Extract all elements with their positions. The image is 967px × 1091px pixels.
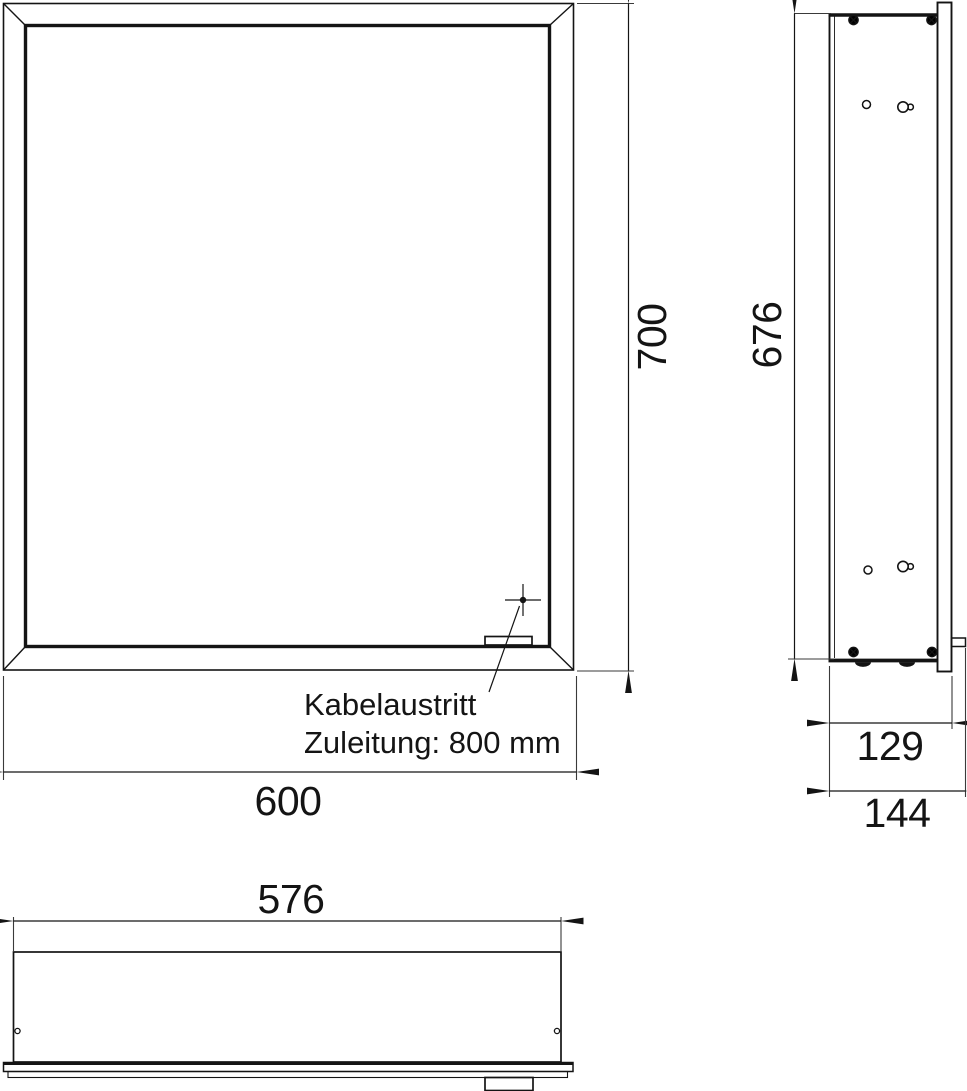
keyhole-slot	[898, 561, 914, 571]
front-inner-frame-mirror-edge	[26, 26, 550, 647]
bottom-screw-holes	[15, 1028, 560, 1033]
dimension-side-body-height: 676	[744, 14, 834, 660]
screw-icons	[849, 15, 937, 656]
dim-label-side-body-depth: 129	[857, 723, 924, 769]
dimension-front-height: 700	[577, 4, 675, 672]
dim-label-front-height: 700	[629, 304, 675, 371]
cable-annotation: Kabelaustritt Zuleitung: 800 mm	[304, 687, 561, 760]
bottom-view	[4, 952, 574, 1091]
dim-label-side-total-depth: 144	[864, 790, 931, 836]
mounting-holes	[863, 101, 914, 575]
dimension-side-body-depth: 129	[830, 666, 953, 797]
mounting-hole	[863, 101, 871, 109]
side-door-panel	[938, 3, 952, 672]
bottom-switch-tab	[485, 1078, 533, 1091]
screw-icon	[927, 15, 936, 24]
side-switch-tab	[952, 638, 966, 647]
dim-label-front-width: 600	[255, 778, 322, 824]
bottom-body-outline	[14, 952, 562, 1062]
front-bevel-corners	[4, 4, 574, 671]
keyhole-slot	[898, 102, 914, 112]
screw-icon	[849, 15, 858, 24]
dim-label-side-body-height: 676	[744, 302, 790, 369]
screw-icon	[849, 647, 858, 656]
screw-hole	[554, 1028, 559, 1033]
cable-exit-marker	[505, 584, 541, 616]
mounting-hole	[864, 566, 872, 574]
cable-exit-leader-line	[489, 606, 520, 692]
screw-icon	[927, 647, 936, 656]
front-view	[4, 4, 574, 693]
dim-label-bottom-body-width: 576	[258, 876, 325, 922]
technical-drawing-canvas: 700 600	[0, 0, 967, 1091]
technical-drawing: 700 600	[0, 0, 967, 1091]
screw-hole	[15, 1028, 20, 1033]
bottom-bumps	[855, 662, 915, 667]
front-outer-frame	[4, 4, 574, 671]
dimension-bottom-body-width: 576	[14, 876, 562, 951]
cable-supply-label: Zuleitung: 800 mm	[304, 725, 561, 760]
side-view	[829, 3, 966, 672]
cable-exit-label: Kabelaustritt	[304, 687, 477, 722]
bottom-door-front-face	[8, 1072, 568, 1078]
